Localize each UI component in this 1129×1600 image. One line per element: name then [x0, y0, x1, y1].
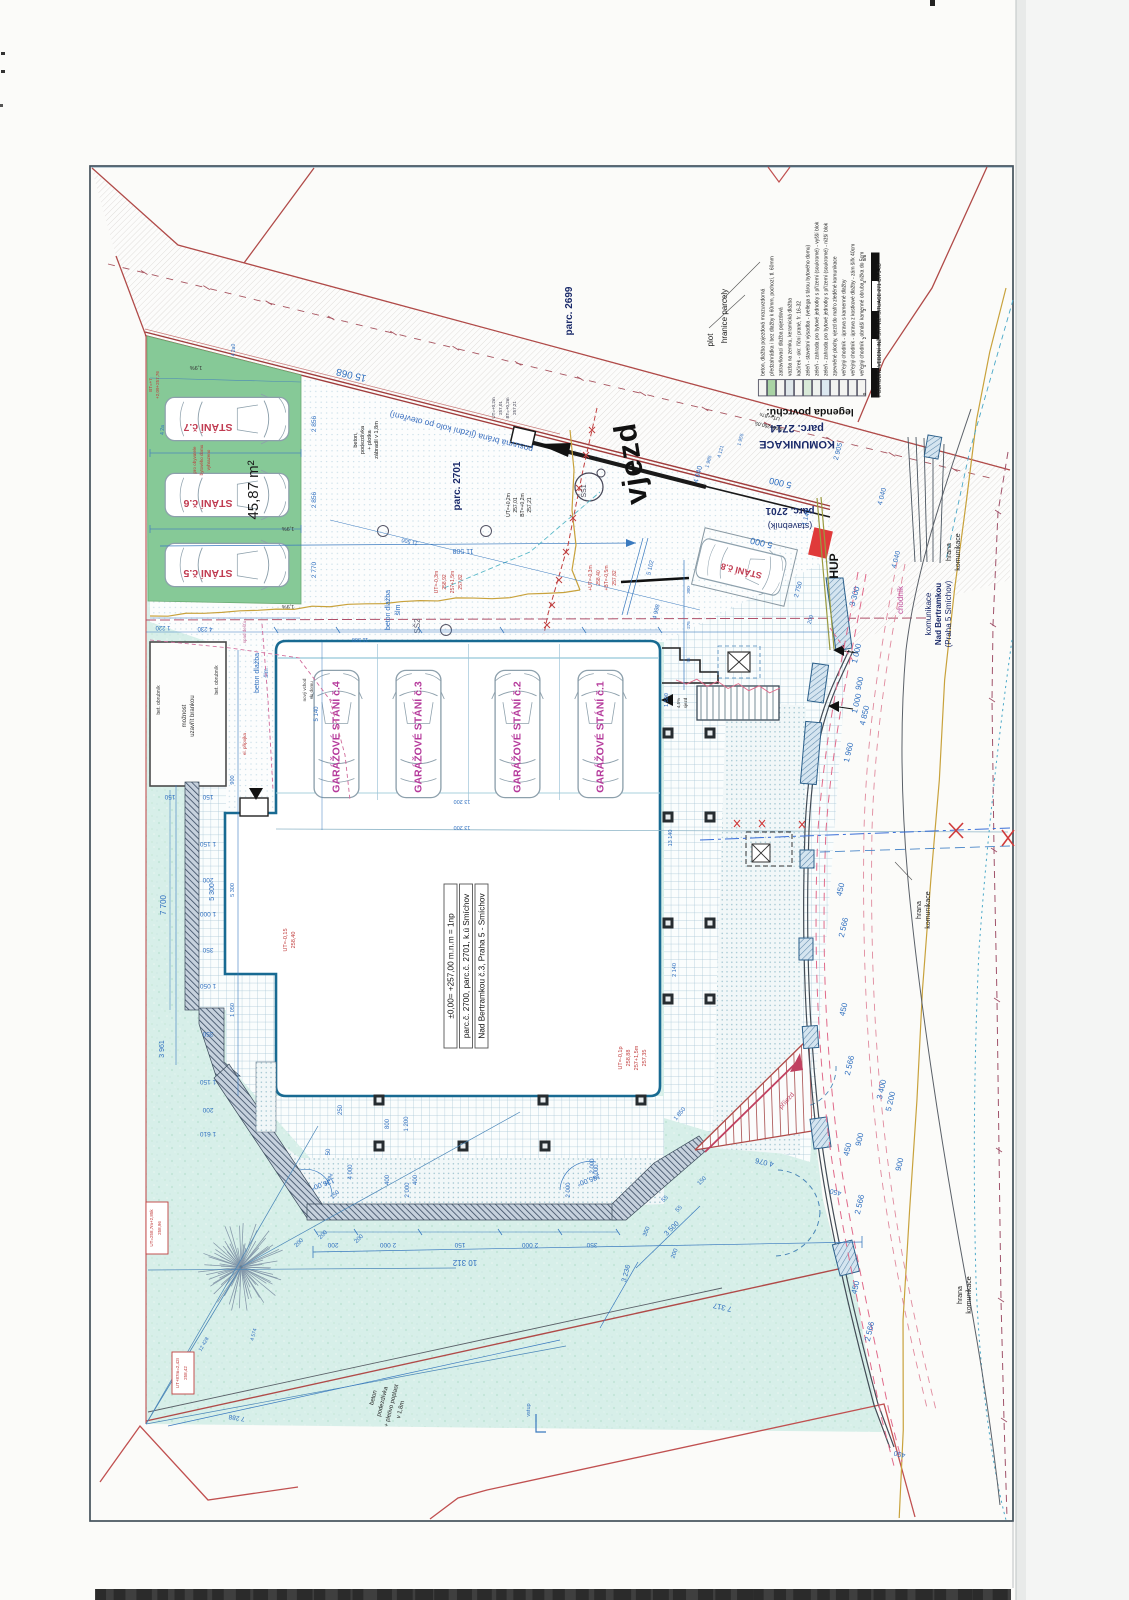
svg-text:3 961: 3 961	[159, 1040, 166, 1058]
svg-text:258,96: 258,96	[157, 1221, 162, 1235]
svg-text:258,42: 258,42	[183, 1366, 188, 1380]
svg-text:Nad Bertramkou: Nad Bertramkou	[934, 583, 943, 645]
svg-text:1 050: 1 050	[230, 1003, 236, 1017]
svg-text:257,82: 257,82	[458, 574, 464, 590]
svg-text:+2,09+257,76: +2,09+257,76	[155, 371, 160, 399]
svg-text:GARÁŽOVÉ STÁNÍ č.1: GARÁŽOVÉ STÁNÍ č.1	[594, 681, 607, 793]
svg-text:zeleň - zahrada pro bytové jed: zeleň - zahrada pro bytové jednotky s př…	[824, 222, 830, 376]
svg-text:350: 350	[202, 946, 213, 953]
svg-text:5 300: 5 300	[230, 883, 236, 897]
svg-text:13 200: 13 200	[454, 824, 471, 830]
svg-text:11 500: 11 500	[352, 636, 368, 642]
svg-text:200: 200	[202, 876, 213, 883]
svg-text:900: 900	[230, 775, 236, 784]
svg-text:200: 200	[202, 1106, 213, 1113]
svg-text:do domu: do domu	[309, 681, 314, 699]
svg-text:beton dlažba: beton dlažba	[254, 653, 261, 693]
svg-text:257+1,5m: 257+1,5m	[450, 571, 456, 593]
svg-text:2 000: 2 000	[405, 1182, 411, 1198]
svg-text:kačírek - okr. říční prané, fr: kačírek - okr. říční prané, fr. 16-32	[797, 301, 803, 376]
svg-text:258,40: 258,40	[291, 932, 297, 949]
svg-text:GARÁŽOVÉ STÁNÍ č.2: GARÁŽOVÉ STÁNÍ č.2	[511, 681, 524, 793]
svg-text:parc. 2701: parc. 2701	[452, 461, 463, 510]
svg-text:vstup: vstup	[526, 1403, 532, 1416]
svg-text:257,35: 257,35	[642, 1050, 648, 1067]
svg-text:předzahrádka i bez dlažby k 60: předzahrádka i bez dlažby k 60mm, pochoz…	[770, 256, 776, 376]
svg-text:2 856: 2 856	[311, 491, 318, 508]
svg-text:zeleň - stavební výsadba - (ve: zeleň - stavební výsadba - (vellega s tá…	[806, 244, 812, 376]
svg-text:±0,00= +257,00 m.n.m = 1np: ±0,00= +257,00 m.n.m = 1np	[447, 913, 456, 1019]
svg-text:150: 150	[164, 793, 175, 800]
svg-text:1 150: 1 150	[199, 840, 216, 847]
svg-text:komunikace: komunikace	[955, 533, 962, 570]
svg-text:zeleň - zahrada pro bytové jed: zeleň - zahrada pro bytové jednotky s př…	[815, 221, 821, 376]
svg-text:1 610: 1 610	[199, 1130, 216, 1137]
svg-text:UT+87m=2,42r: UT+87m=2,42r	[175, 1357, 180, 1388]
svg-text:257,01: 257,01	[498, 401, 503, 415]
svg-text:250: 250	[338, 1104, 344, 1115]
svg-text:257,21: 257,21	[512, 401, 517, 415]
svg-text:pro obyvatele: pro obyvatele	[192, 446, 197, 474]
svg-text:150: 150	[454, 1241, 465, 1248]
svg-text:1 050: 1 050	[199, 982, 216, 989]
svg-text:400: 400	[413, 1174, 419, 1185]
svg-text:258,92: 258,92	[442, 574, 448, 590]
svg-text:(Praha 5 Smíchov): (Praha 5 Smíchov)	[944, 580, 953, 647]
svg-text:4 000: 4 000	[348, 1164, 354, 1180]
svg-text:275: 275	[686, 621, 691, 629]
svg-text:komunikace: komunikace	[966, 1276, 973, 1313]
svg-text:hrana: hrana	[957, 1286, 964, 1304]
svg-text:KOMUNIKACE: KOMUNIKACE	[759, 438, 835, 450]
svg-text:chodník: chodník	[896, 585, 905, 614]
svg-text:UT=-0,15: UT=-0,15	[283, 928, 289, 951]
svg-text:beton dlažba: beton dlažba	[385, 590, 392, 630]
svg-text:1,9%: 1,9%	[190, 364, 203, 370]
svg-text:GARÁŽOVÉ STÁNÍ č.3: GARÁŽOVÉ STÁNÍ č.3	[412, 681, 425, 793]
svg-text:hrana: hrana	[916, 901, 923, 919]
svg-text:podezdívka: podezdívka	[360, 425, 366, 454]
svg-text:257+1,5m: 257+1,5m	[634, 1045, 640, 1070]
svg-text:sjezd: sjezd	[683, 697, 688, 708]
svg-text:el. přípojka: el. přípojka	[242, 732, 247, 755]
svg-text:hrana: hrana	[946, 543, 953, 561]
svg-text:uzavřít brankou: uzavřít brankou	[190, 695, 196, 736]
svg-text:beton,: beton,	[353, 432, 359, 448]
svg-text:1 220: 1 220	[155, 624, 171, 630]
svg-text:bytového domu: bytového domu	[199, 444, 204, 475]
svg-text:257,01: 257,01	[513, 497, 519, 513]
svg-text:STÁNÍ č.5: STÁNÍ č.5	[183, 567, 232, 580]
svg-text:257,21: 257,21	[527, 497, 533, 513]
svg-text:13 200: 13 200	[454, 798, 471, 804]
svg-text:2 856: 2 856	[311, 415, 318, 432]
svg-text:veřejný chodník - obnáší kamen: veřejný chodník - obnáší kamenné obruba …	[860, 252, 866, 376]
svg-text:1 200: 1 200	[404, 1116, 410, 1132]
svg-text:1 000: 1 000	[199, 910, 216, 917]
svg-text:vyhrazeno: vyhrazeno	[206, 449, 211, 470]
svg-text:hranice parcely: hranice parcely	[720, 289, 729, 343]
svg-text:5 140: 5 140	[314, 706, 320, 722]
svg-text:STÁNÍ č.7: STÁNÍ č.7	[183, 421, 232, 434]
svg-text:258,88: 258,88	[626, 1050, 632, 1067]
svg-text:zatravňovací dlažba pojezdová: zatravňovací dlažba pojezdová	[779, 307, 785, 376]
svg-text:5m: 5m	[862, 255, 867, 262]
svg-text:zábradlí v 1,8m: zábradlí v 1,8m	[374, 421, 380, 459]
svg-text:zpevněné plochy, vjezd do mafr: zpevněné plochy, vjezd do mafro zleděné …	[833, 256, 839, 376]
svg-text:BT=+0,2m: BT=+0,2m	[505, 397, 510, 418]
svg-text:ŠS1: ŠS1	[579, 484, 588, 497]
svg-text:400: 400	[385, 1174, 391, 1185]
svg-text:komunikace: komunikace	[924, 592, 933, 635]
svg-text:PODROBNÉ VEDENÍ INŽ. SÍTÍ VIZ.: PODROBNÉ VEDENÍ INŽ. SÍTÍ VIZ. SITUACE 2…	[875, 263, 883, 397]
svg-text:258,40: 258,40	[596, 570, 602, 586]
svg-text:GARÁŽOVÉ STÁNÍ č.4: GARÁŽOVÉ STÁNÍ č.4	[330, 681, 343, 793]
svg-text:4,5%: 4,5%	[676, 698, 681, 708]
svg-text:5 300: 5 300	[209, 883, 216, 901]
svg-text:parc. 2699: parc. 2699	[564, 286, 575, 335]
svg-text:10 312: 10 312	[452, 1258, 477, 1267]
svg-text:800: 800	[385, 1118, 391, 1129]
svg-text:1 500: 1 500	[664, 693, 670, 707]
svg-text:UT=258,7m+2,85k: UT=258,7m+2,85k	[149, 1209, 154, 1247]
svg-text:2 000: 2 000	[566, 1182, 572, 1198]
svg-text:UT=-0,1p: UT=-0,1p	[618, 1046, 624, 1069]
svg-text:beton, dlažba pojezdová mrazuv: beton, dlažba pojezdová mrazuvzdorná	[761, 289, 767, 376]
svg-text:veřejný chodník - úprava s kam: veřejný chodník - úprava s kamenné dlažb…	[842, 279, 848, 376]
svg-text:2 000: 2 000	[590, 1158, 596, 1174]
svg-text:1,9%: 1,9%	[282, 603, 295, 609]
svg-text:45,87 m²: 45,87 m²	[245, 460, 262, 519]
svg-text:1,9%: 1,9%	[282, 525, 295, 531]
svg-text:nový vchod: nový vchod	[302, 678, 307, 701]
svg-text:13 140: 13 140	[668, 830, 674, 847]
svg-text:vazba na zemku, keramická dlaž: vazba na zemku, keramická dlažba	[788, 298, 794, 376]
svg-text:2 770: 2 770	[311, 561, 318, 578]
svg-text:95: 95	[686, 657, 691, 663]
svg-text:BT=+7: BT=+7	[148, 378, 153, 392]
svg-text:7 700: 7 700	[159, 894, 168, 915]
svg-text:+ plotka: + plotka	[367, 429, 373, 449]
svg-text:2 000: 2 000	[521, 1241, 538, 1248]
svg-text:HUP: HUP	[827, 553, 841, 578]
svg-text:200: 200	[327, 1241, 338, 1248]
svg-text:2 000: 2 000	[379, 1241, 396, 1248]
svg-text:spad dešťu: spad dešťu	[242, 620, 247, 643]
svg-text:bet. obrubník: bet. obrubník	[156, 685, 162, 715]
svg-text:2 140: 2 140	[672, 963, 678, 977]
svg-text:šlm: šlm	[264, 668, 270, 677]
svg-text:257,82: 257,82	[612, 570, 618, 586]
svg-text:350: 350	[202, 1030, 213, 1037]
svg-text:+UT=-0,3m: +UT=-0,3m	[588, 565, 594, 590]
svg-text:UT=+0,2m: UT=+0,2m	[506, 493, 512, 517]
svg-text:50: 50	[326, 1148, 332, 1155]
svg-text:šlm: šlm	[395, 604, 402, 615]
svg-text:UT=-0,3m: UT=-0,3m	[434, 571, 440, 593]
svg-text:4 2a: 4 2a	[160, 425, 166, 435]
svg-text:300: 300	[686, 586, 691, 594]
svg-text:komunikace: komunikace	[925, 891, 932, 928]
svg-text:možnost: možnost	[182, 704, 188, 727]
svg-text:Nad Bertramkou č.3, Praha 5 -: Nad Bertramkou č.3, Praha 5 - Smíchov	[478, 893, 487, 1039]
svg-text:BT=+0,2m: BT=+0,2m	[520, 493, 526, 516]
svg-text:4 2a0: 4 2a0	[231, 344, 237, 357]
svg-text:parc.č. 2700, parc.č. 2701, k.: parc.č. 2700, parc.č. 2701, k.ú Smíchov	[462, 893, 471, 1038]
svg-text:1 150: 1 150	[199, 1078, 216, 1085]
svg-text:STÁNÍ č.6: STÁNÍ č.6	[183, 497, 232, 510]
svg-text:4 230: 4 230	[197, 625, 213, 631]
svg-text:bet. obrubník: bet. obrubník	[214, 665, 220, 695]
svg-text:veřejný chodník - úprava z kos: veřejný chodník - úprava z kostkové dlaž…	[851, 244, 857, 376]
svg-text:plot: plot	[706, 333, 715, 347]
svg-text:UT=+0,2m: UT=+0,2m	[491, 397, 496, 419]
svg-text:150: 150	[202, 793, 213, 800]
